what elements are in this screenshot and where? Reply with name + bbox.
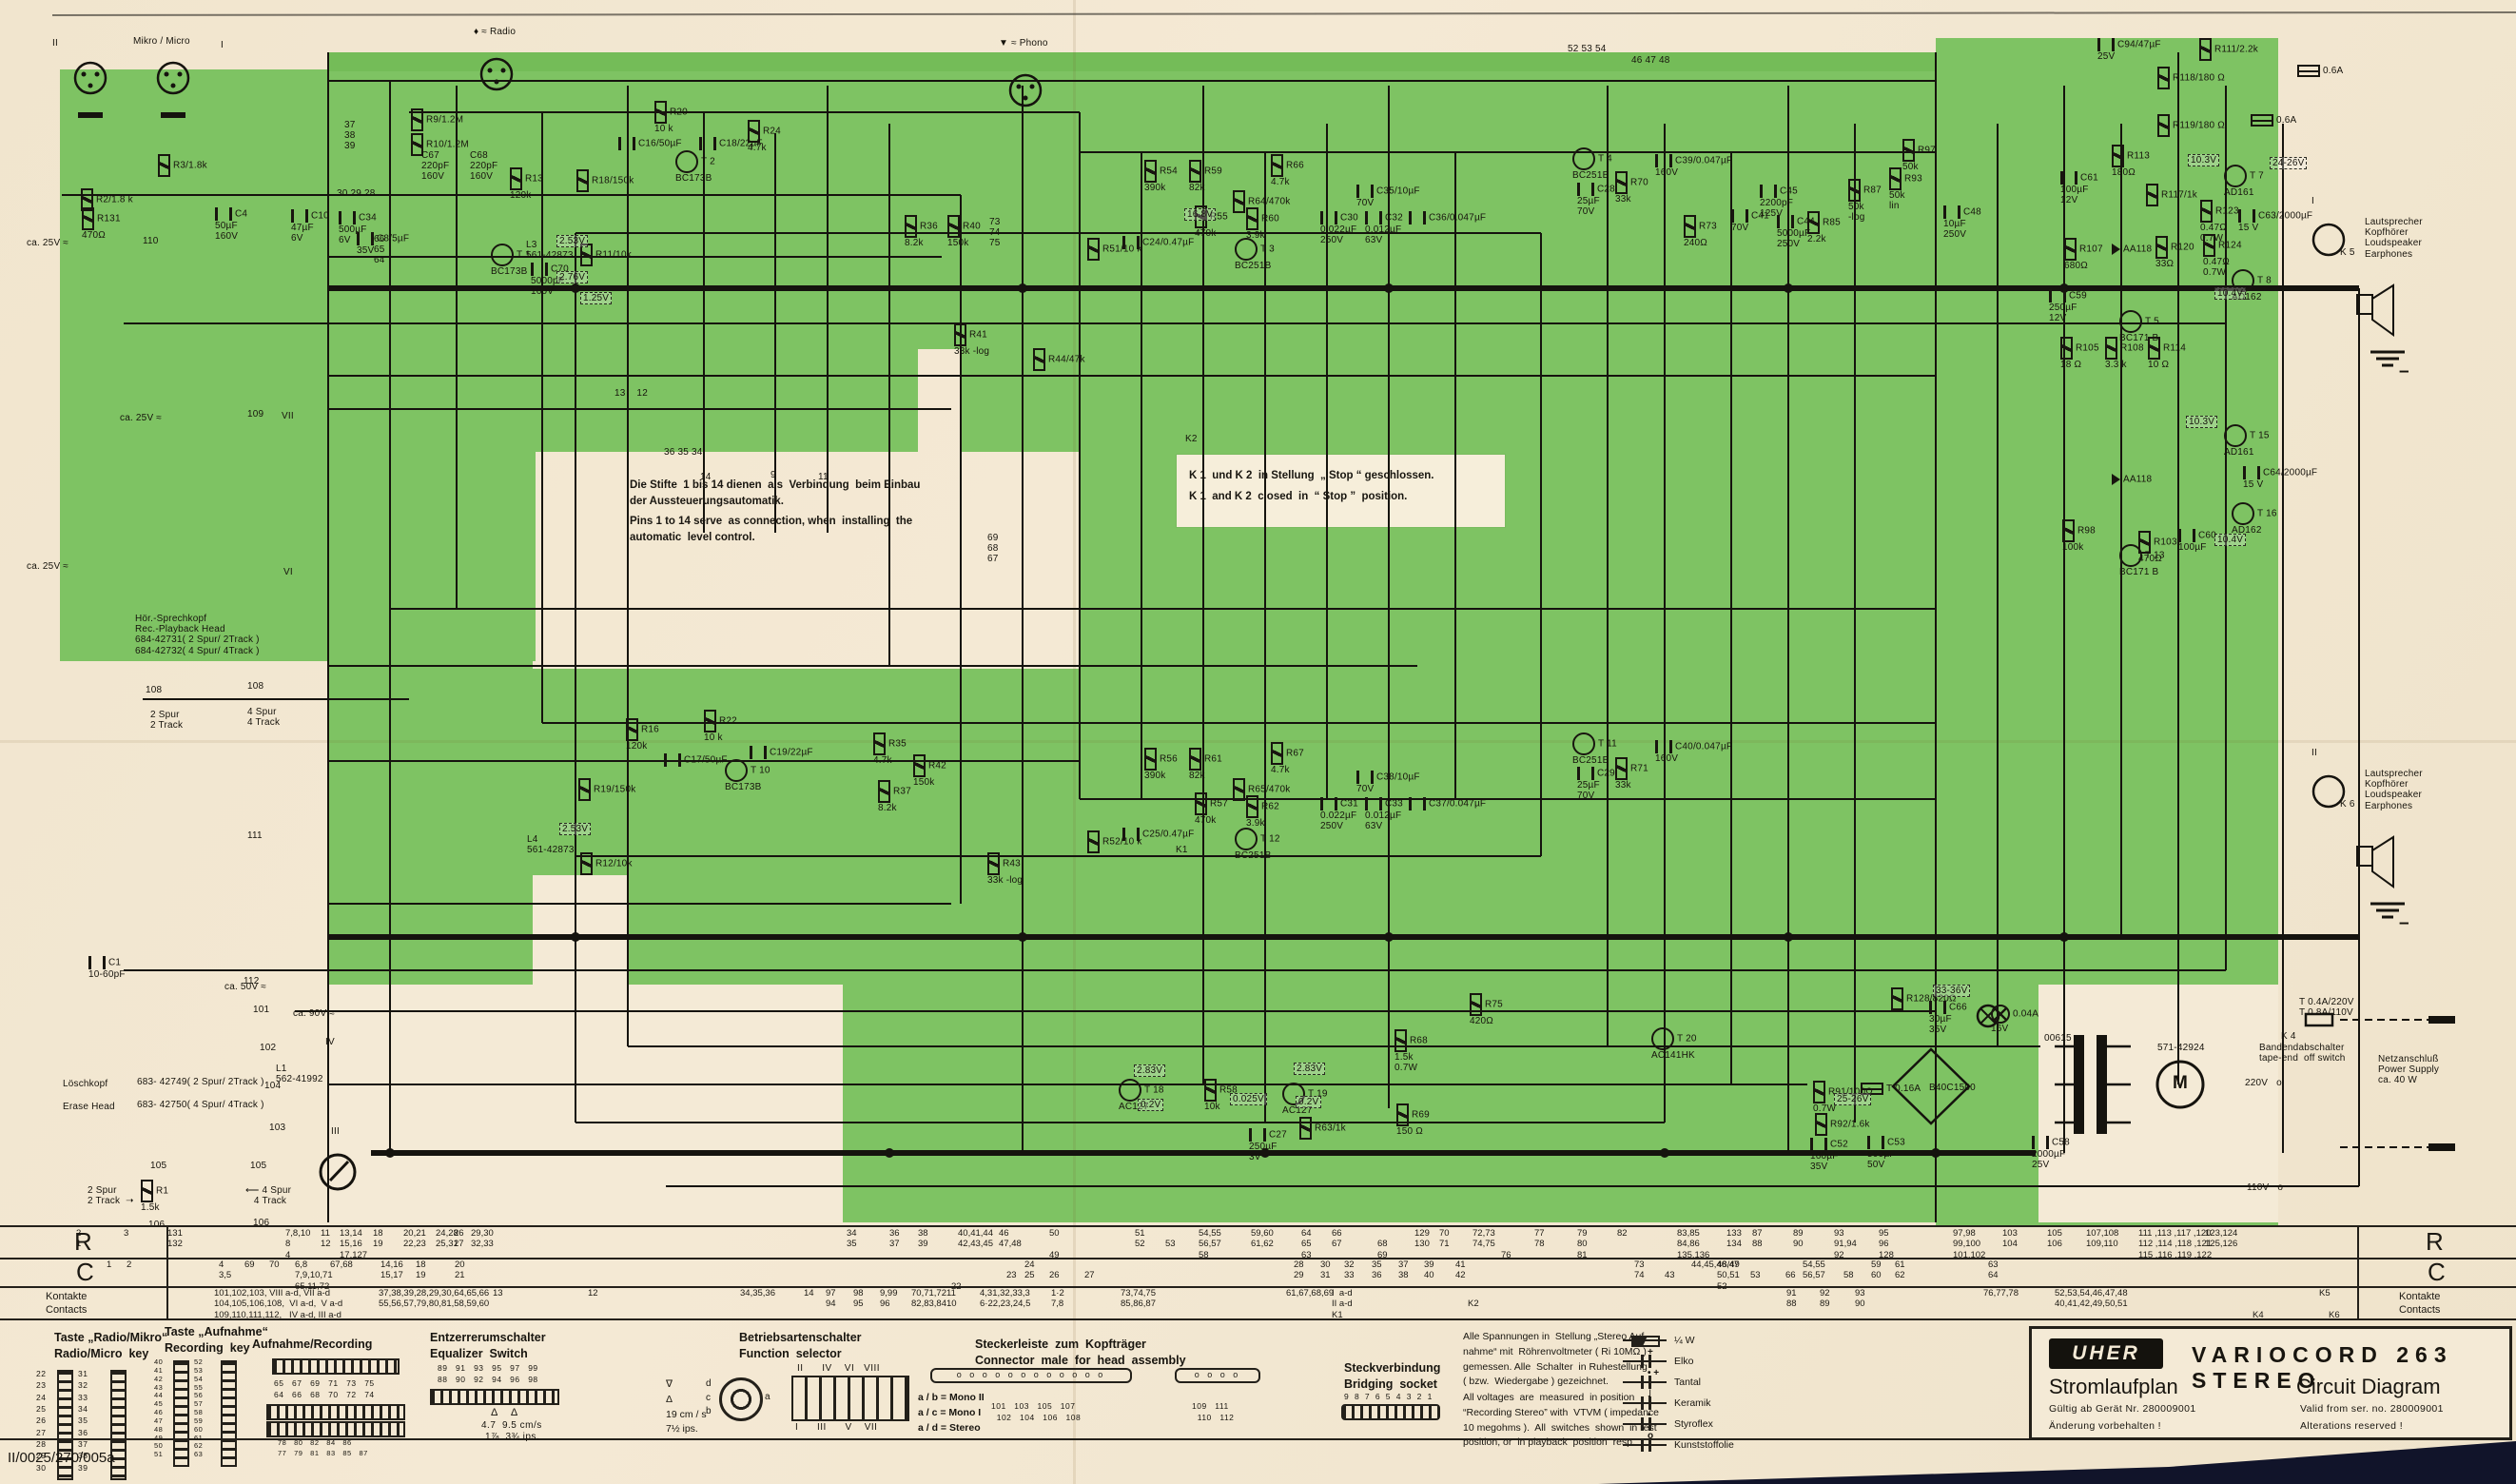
d-symbol — [2112, 244, 2120, 255]
component-label: – — [2399, 913, 2409, 933]
index-cell: 34,35,36 — [740, 1288, 775, 1298]
component-label: AA118 — [2112, 474, 2152, 485]
component-label: C53 500µF 50V — [1867, 1136, 1905, 1170]
r-symbol — [2146, 184, 2158, 206]
index-cell: 2 1 — [76, 1228, 81, 1250]
schematic-page: IIMikro / MicroI♦ ≈ Radio▼ ≈ PhonoR2/1.8… — [0, 0, 2516, 1484]
component-label: R108 3.3 k — [2105, 337, 2144, 370]
c-symbol — [291, 209, 308, 223]
component-label: L1 562-41992 — [276, 1064, 323, 1084]
c-symbol — [1810, 1138, 1827, 1151]
cap-legend-row: oKunststoffolie — [1623, 1435, 1734, 1455]
c-symbol — [1577, 183, 1594, 196]
component-label: R63/1k — [1299, 1117, 1346, 1140]
component-label: 30 29 28 — [337, 188, 376, 199]
r-symbol — [1889, 167, 1902, 190]
t-symbol — [1235, 828, 1258, 850]
function-romans-bottom: I III V VII — [795, 1421, 877, 1435]
t-symbol — [2224, 424, 2247, 447]
component-label: 37 38 39 — [344, 120, 356, 152]
r-symbol — [510, 167, 522, 190]
component-label: 683- 42750( 4 Spur/ 4Track ) — [137, 1100, 264, 1110]
index-cell: 24 25 — [1024, 1259, 1035, 1281]
component-label: 110 — [143, 236, 159, 246]
t-symbol — [675, 150, 698, 173]
component-label: Bandendabschalter tape-end off switch — [2259, 1043, 2346, 1064]
index-cell: 101,102,103, VIII a-d, VII a-d 104,105,1… — [214, 1288, 342, 1320]
component-label: R20 10 k — [654, 101, 688, 134]
head-connector-bar-2: o o o o — [1175, 1368, 1260, 1383]
component-label: C4 50µF 160V — [215, 207, 247, 242]
c-symbol — [750, 746, 767, 759]
component-label: 0.6A — [2251, 114, 2296, 127]
t-symbol — [2232, 502, 2254, 525]
component-label: T 2 BC173B — [675, 150, 715, 184]
t-symbol — [491, 244, 514, 266]
r-symbol — [2062, 519, 2075, 542]
valid-en: Valid from ser. no. 280009001 — [2300, 1403, 2444, 1415]
capacitor-symbol: ˩ — [1623, 1396, 1667, 1411]
component-label: Löschkopf — [63, 1079, 107, 1089]
component-label: C16/50µF — [618, 137, 682, 150]
index-cell: 20 21 — [455, 1259, 465, 1281]
index-cell: 76 — [1501, 1228, 1512, 1260]
component-label: C19/22µF — [750, 746, 813, 759]
index-cell: 50 49 — [1049, 1228, 1060, 1260]
equalizer-switch — [430, 1389, 559, 1405]
capacitor-legend: ¼ W+Elko• +Tantal˩Keramik▪StyroflexoKuns… — [1623, 1330, 1734, 1455]
r-symbol — [2112, 145, 2124, 167]
component-label: R75 420Ω — [1470, 993, 1503, 1026]
r-symbol — [1233, 778, 1245, 801]
component-label: T 20 AC141HK — [1651, 1027, 1697, 1061]
component-label: R3/1.8k — [158, 154, 207, 177]
component-label: K2 — [1185, 434, 1198, 444]
voltage-callout: 2.83V — [1134, 1065, 1165, 1076]
index-cell: 103 104 — [2002, 1228, 2018, 1250]
component-label: R22 10 k — [704, 710, 737, 743]
c-symbol — [618, 137, 635, 150]
index-cell: 70,71,72 82,83,84 — [911, 1288, 946, 1310]
component-label: ⟵ 4 Spur 4 Track — [245, 1185, 291, 1206]
component-label: R119/180 Ω — [2157, 114, 2225, 137]
index-cell: 3 — [124, 1228, 128, 1239]
voltage-note-de: Alle Spannungen in Stellung „Stereo Auf-… — [1463, 1330, 1648, 1390]
c-symbol — [2097, 38, 2115, 51]
component-label: 102 — [260, 1043, 276, 1053]
component-label: C27 250µF 3V — [1249, 1128, 1287, 1162]
r-symbol — [1144, 160, 1157, 183]
index-cell: 37 38 — [1398, 1259, 1409, 1281]
r-symbol — [1246, 795, 1258, 818]
component-label: R105 18 Ω — [2060, 337, 2099, 370]
t-symbol — [1572, 732, 1595, 755]
r-symbol — [576, 169, 589, 192]
index-cell: 1·2 7,8 — [1051, 1288, 1064, 1310]
component-label: R103 470Ω — [2138, 531, 2177, 564]
component-label: R120 33Ω — [2155, 236, 2194, 269]
d-symbol — [2112, 474, 2120, 485]
component-label: VI — [283, 567, 293, 577]
component-label: R98 100k — [2062, 519, 2096, 553]
t-symbol — [1235, 238, 1258, 261]
r-symbol — [2199, 38, 2212, 61]
function-letters-left: d c b — [706, 1377, 712, 1419]
row-label-c-right: C — [2428, 1258, 2446, 1287]
index-cell: 53 — [1165, 1228, 1176, 1250]
component-label: 683- 42749( 2 Spur/ 2Track ) — [137, 1077, 264, 1087]
r-symbol — [1902, 139, 1915, 162]
r-symbol — [82, 207, 94, 230]
r-symbol — [954, 323, 966, 346]
voltage-callout: 16.8V — [1184, 209, 1216, 220]
index-cell: 76,77,78 — [1983, 1288, 2019, 1298]
r-symbol — [1615, 171, 1628, 194]
voltage-callout: 10.4V — [2214, 288, 2246, 299]
component-label: 73 74 75 — [989, 217, 1001, 249]
component-label: R37 8.2k — [878, 780, 911, 813]
index-cell: 11 12 — [321, 1228, 331, 1250]
c-symbol — [1577, 767, 1594, 780]
component-label: R73 240Ω — [1684, 215, 1717, 248]
note-en: Alterations reserved ! — [2300, 1420, 2403, 1432]
r-symbol — [1271, 154, 1283, 177]
component-label: C64/2000µF 15 V — [2243, 466, 2317, 490]
component-label: C68 220pF 160V — [470, 150, 497, 183]
r-symbol — [1807, 211, 1820, 234]
component-label: C52 160µF 35V — [1810, 1138, 1848, 1172]
cap-legend-label: Keramik — [1674, 1397, 1711, 1409]
index-cell: 129 130 — [1414, 1228, 1430, 1250]
component-label: R92/1.6k — [1815, 1113, 1870, 1136]
c-symbol — [1655, 154, 1672, 167]
component-label: T 7 AD161 — [2224, 165, 2264, 198]
index-cell: 46 47,48 — [999, 1228, 1022, 1250]
component-label: C48 10µF 250V — [1943, 205, 1981, 240]
voltage-callout: 2.53V — [556, 236, 588, 246]
component-label: C29 25µF 70V — [1577, 767, 1615, 801]
c-symbol — [1320, 797, 1337, 810]
c-symbol — [531, 263, 548, 276]
component-label: R19/150k — [578, 778, 635, 801]
index-cell: 73 74 — [1634, 1259, 1645, 1281]
index-cell: 61 62 — [1895, 1259, 1905, 1281]
voltage-callout: 24-26V — [2270, 158, 2307, 168]
index-cell: 93 91,94 92 — [1834, 1228, 1857, 1260]
c-symbol — [2060, 171, 2077, 185]
capacitor-symbol: ▪ — [1623, 1416, 1667, 1432]
cap-legend-label: Kunststoffolie — [1674, 1439, 1734, 1451]
bridging-socket — [1341, 1404, 1440, 1420]
component-label: Lautsprecher Kopfhörer Loudspeaker Earph… — [2365, 769, 2423, 811]
r-symbol — [905, 215, 917, 238]
r-symbol — [1815, 1113, 1827, 1136]
r-symbol — [704, 710, 716, 732]
c-symbol — [215, 207, 232, 221]
r-symbol — [1891, 987, 1903, 1010]
component-label: 110V o — [2247, 1182, 2283, 1193]
voltage-callout: 10.3V — [2188, 155, 2219, 166]
component-label: ca. 50V ≈ — [224, 982, 266, 992]
component-label: 0.04A 16V — [1991, 1005, 2038, 1034]
voltage-callout: 2.76V — [556, 272, 588, 283]
component-label: C31 0.022µF 250V — [1320, 797, 1358, 831]
index-cell: 38 39 — [918, 1228, 928, 1250]
index-cell: 111 ,113 ,117 ,120 112 ,114 ,118 ,121 11… — [2138, 1228, 2212, 1260]
component-label: C25/0.47µF — [1122, 828, 1194, 841]
component-label: R40 150k — [947, 215, 981, 248]
capacitor-symbol: + — [1623, 1354, 1667, 1369]
c-symbol — [1320, 211, 1337, 225]
legend-recording-title: Aufnahme/Recording — [252, 1337, 372, 1353]
index-cell: 14,16 15,17 — [380, 1259, 403, 1281]
c-symbol — [2178, 529, 2195, 542]
index-cell: 32 33 — [1344, 1259, 1355, 1281]
recording-numbers-top: 65 67 69 71 73 75 64 66 68 70 72 74 — [274, 1377, 375, 1401]
component-label: 108 — [146, 685, 162, 695]
index-cell: 13 — [493, 1288, 503, 1298]
r-symbol — [2200, 200, 2213, 223]
voltage-callout: 1.25V — [580, 293, 612, 303]
component-label: ▼ ≈ Phono — [999, 38, 1048, 49]
r-symbol — [578, 778, 591, 801]
c-symbol — [1356, 185, 1374, 198]
index-cell: 131 132 — [167, 1228, 183, 1250]
index-cell: 97 94 — [826, 1288, 836, 1310]
c-symbol — [88, 956, 106, 969]
c-symbol — [1122, 828, 1140, 841]
index-cell: 18 19 — [373, 1228, 383, 1250]
component-label: R12/10k — [580, 852, 633, 875]
c-symbol — [699, 137, 716, 150]
component-label: T 15 AD161 — [2224, 424, 2270, 458]
component-label: Erase Head — [63, 1102, 115, 1112]
component-label: R67 4.7k — [1271, 742, 1304, 775]
r-symbol — [1033, 348, 1045, 371]
component-label: 220V o — [2245, 1078, 2282, 1088]
head-connector-pins-2: 109 111 110 112 — [1192, 1400, 1234, 1424]
c-symbol — [1365, 797, 1382, 810]
component-label: Lautsprecher Kopfhörer Loudspeaker Earph… — [2365, 217, 2423, 260]
r-symbol — [878, 780, 890, 803]
legend-equalizer-title: Entzerrerumschalter Equalizer Switch — [430, 1330, 546, 1362]
component-label: VII — [282, 411, 294, 421]
index-cell: 39 40 — [1424, 1259, 1434, 1281]
head-connector-pins-1: 101 103 105 107 102 104 106 108 — [991, 1400, 1081, 1424]
component-label: R111/2.2k — [2199, 38, 2258, 61]
component-label: 105 — [250, 1161, 266, 1171]
component-label: T 0.4A/220V T 0.8A/110V — [2299, 997, 2354, 1018]
component-label: R68 1.5k 0.7W — [1395, 1029, 1428, 1073]
component-label: R93 50k lin — [1889, 167, 1922, 211]
component-label: C67 220pF 160V — [421, 150, 449, 183]
c-symbol — [1867, 1136, 1884, 1149]
index-cell: 58 — [1843, 1259, 1854, 1281]
document-number: II/0025/270/005a — [8, 1450, 115, 1466]
c-symbol — [2243, 466, 2260, 479]
note-de: Änderung vorbehalten ! — [2049, 1420, 2161, 1432]
component-label: C40/0.047µF 160V — [1655, 740, 1732, 764]
voltage-callout: 2.53V — [559, 824, 591, 834]
c-symbol — [1409, 797, 1426, 810]
index-cell: 87 88 — [1752, 1228, 1763, 1250]
t-symbol — [2119, 310, 2142, 333]
r-symbol — [1087, 830, 1100, 853]
r-symbol — [748, 120, 760, 143]
r-symbol — [2155, 236, 2168, 259]
component-label: M — [2173, 1073, 2188, 1093]
component-label: T 4 BC251B — [1572, 147, 1612, 181]
component-label: IV — [325, 1037, 335, 1047]
component-label: 2 Spur 2 Track — [150, 710, 183, 731]
t-symbol — [725, 759, 748, 782]
title-de: Stromlaufplan — [2049, 1375, 2178, 1399]
r-symbol — [2157, 67, 2170, 89]
r-symbol — [1813, 1081, 1825, 1103]
r-symbol — [411, 108, 423, 131]
component-label: B40C1500 — [1929, 1083, 1976, 1093]
index-cell: 98 95 — [853, 1288, 864, 1310]
voltage-callout: 25-26V — [1834, 1094, 1871, 1104]
component-label: R16 120k — [626, 718, 659, 752]
cap-legend-label: Styroflex — [1674, 1418, 1713, 1430]
index-cell: 54,55 56,57 — [1803, 1259, 1825, 1281]
index-cell: 66 — [1785, 1259, 1796, 1281]
component-label: 0.6A — [2297, 65, 2343, 77]
cap-legend-label: Elko — [1674, 1356, 1693, 1367]
component-label: 00615 — [2044, 1033, 2072, 1044]
r-symbol — [873, 732, 886, 755]
legend-radio-key-title: Taste „Radio/Mikro“ Radio/Micro key — [54, 1330, 167, 1362]
index-cell: 2 — [127, 1259, 131, 1270]
index-cell: I a-d II a-d K1 — [1332, 1288, 1353, 1320]
r-symbol — [1189, 748, 1201, 771]
rec-key-switch-2 — [221, 1360, 237, 1467]
r-symbol — [1395, 1029, 1407, 1052]
component-label: 103 — [269, 1123, 285, 1133]
component-label: R44/47k — [1033, 348, 1085, 371]
component-label: C36/0.047µF — [1409, 211, 1486, 225]
r-symbol — [2138, 531, 2151, 554]
r-symbol — [1396, 1103, 1409, 1126]
index-cell: 43 — [1665, 1259, 1675, 1281]
c-symbol — [1249, 1128, 1266, 1142]
index-cell: 30 31 — [1320, 1259, 1331, 1281]
note-stop-en: K 1 and K 2 closed in “ Stop ” position. — [1189, 489, 1407, 505]
component-label: C94/47µF 25V — [2097, 38, 2161, 62]
component-label: 46 47 48 — [1631, 55, 1670, 66]
component-label: 105 — [150, 1161, 166, 1171]
component-label: C59 250µF 12V — [2049, 289, 2087, 323]
component-label: C24/0.47µF — [1122, 236, 1194, 249]
f-symbol — [2297, 65, 2320, 77]
component-label: R131 470Ω — [82, 207, 121, 241]
component-label: I — [221, 40, 224, 50]
component-label: C66 30µF 35V — [1929, 1001, 1967, 1035]
r-symbol — [158, 154, 170, 177]
component-label: R9/1.2M — [411, 108, 463, 131]
index-cell: 26 — [1049, 1259, 1060, 1281]
r-symbol — [654, 101, 667, 124]
capacitor-symbol: • + — [1623, 1375, 1667, 1390]
index-cell: 9,99 96 — [880, 1288, 898, 1310]
title-en: Circuit Diagram — [2296, 1375, 2441, 1399]
component-label: R60 3.9k — [1246, 207, 1279, 241]
component-label: C33 0.012µF 63V — [1365, 797, 1403, 831]
r-symbol — [626, 718, 638, 741]
component-label: K 6 — [2340, 799, 2355, 810]
component-label: 101 — [253, 1005, 269, 1015]
note-pins: Die Stifte 1 bis 14 dienen als Verbindun… — [630, 478, 920, 509]
component-label: 69 68 67 — [987, 533, 999, 565]
index-cell: 67,68 — [330, 1259, 353, 1270]
index-cell: K4 — [2253, 1288, 2264, 1320]
component-label: 52 53 54 — [1568, 44, 1607, 54]
index-cell: 92 89 — [1820, 1288, 1830, 1310]
component-label: 66 65 64 — [374, 234, 385, 266]
index-cell: 29,30 32,33 — [471, 1228, 494, 1250]
component-label: K1 — [1176, 845, 1188, 855]
index-cell: 70 — [269, 1259, 280, 1270]
cap-legend-label: Tantal — [1674, 1377, 1701, 1388]
component-label: C63/2000µF 15 V — [2238, 209, 2312, 233]
index-cell: 89 90 — [1793, 1228, 1804, 1250]
component-label: 109 — [247, 409, 263, 420]
component-label: R107 680Ω — [2064, 238, 2103, 271]
legend-bridging-title: Steckverbindung Bridging socket — [1344, 1360, 1440, 1393]
component-label: R57 470k — [1195, 792, 1228, 826]
index-cell: 64 65 63 — [1301, 1228, 1312, 1260]
index-cell: K6 — [2329, 1288, 2340, 1320]
component-label: 2 Spur 2 Track ➝ — [88, 1185, 134, 1206]
c-symbol — [1409, 211, 1426, 225]
t-symbol — [1572, 147, 1595, 170]
capacitor-symbol: o — [1623, 1437, 1667, 1453]
component-label: R13 120k — [510, 167, 543, 201]
index-cell: 1 — [107, 1259, 111, 1270]
component-label: C35/10µF 70V — [1356, 185, 1420, 208]
index-cell: 70 71 — [1439, 1228, 1450, 1250]
component-label: T 12 BC251B — [1235, 828, 1280, 861]
component-label: 36 35 34 — [664, 447, 703, 458]
component-label: R1 1.5k — [141, 1180, 168, 1213]
index-cell: 107,108 109,110 — [2086, 1228, 2118, 1250]
index-cell: 59 60 — [1871, 1259, 1882, 1281]
component-label: I — [2311, 196, 2314, 206]
index-cell: 73,74,75 85,86,87 — [1121, 1288, 1156, 1310]
row-label-contacts: Kontakte Contacts — [46, 1290, 87, 1318]
c-symbol — [1655, 740, 1672, 753]
uher-logo: UHER — [2049, 1338, 2163, 1369]
component-label: C10 47µF 6V — [291, 209, 329, 244]
component-label: C37/0.047µF — [1409, 797, 1486, 810]
component-label: R97 50k — [1902, 139, 1936, 172]
r-symbol — [1233, 190, 1245, 213]
component-label: R117/1k — [2146, 184, 2197, 206]
index-cell: 123,124 125,126 — [2205, 1228, 2237, 1250]
component-label: K 4 — [2281, 1031, 2296, 1042]
component-label: II — [52, 38, 58, 49]
c-symbol — [1356, 771, 1374, 784]
component-label: R59 82k — [1189, 160, 1222, 193]
index-cell: 4,31,32,33,3 6·22,23,24,5 — [980, 1288, 1030, 1310]
component-label: 111 — [247, 830, 263, 841]
c-symbol — [1943, 205, 1960, 219]
index-cell: 20,21 22,23 — [403, 1228, 426, 1250]
component-label: C28 25µF 70V — [1577, 183, 1615, 217]
component-label: III — [331, 1126, 340, 1137]
index-cell: 59,60 61,62 — [1251, 1228, 1274, 1250]
